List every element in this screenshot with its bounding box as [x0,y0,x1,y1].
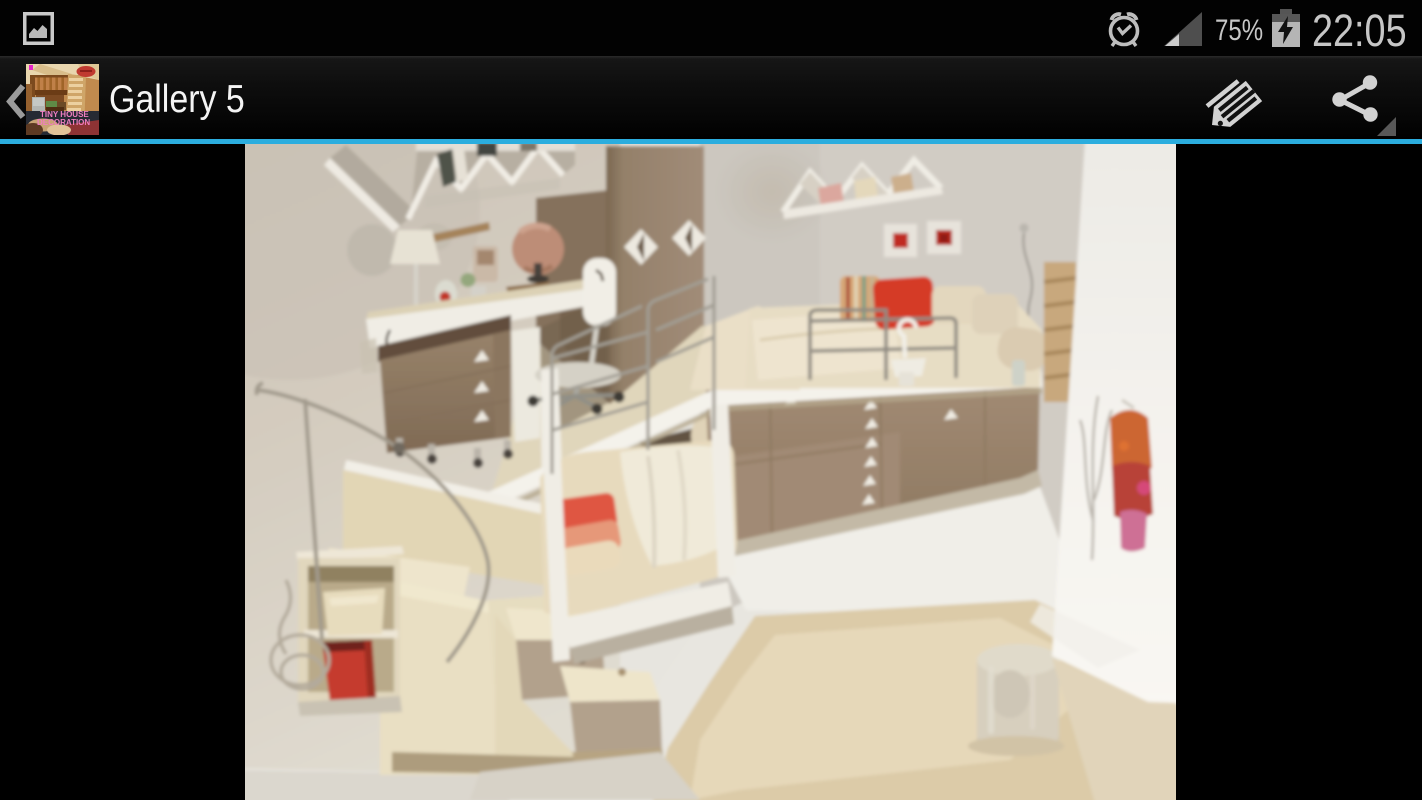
svg-text:DECORATION: DECORATION [37,118,90,127]
